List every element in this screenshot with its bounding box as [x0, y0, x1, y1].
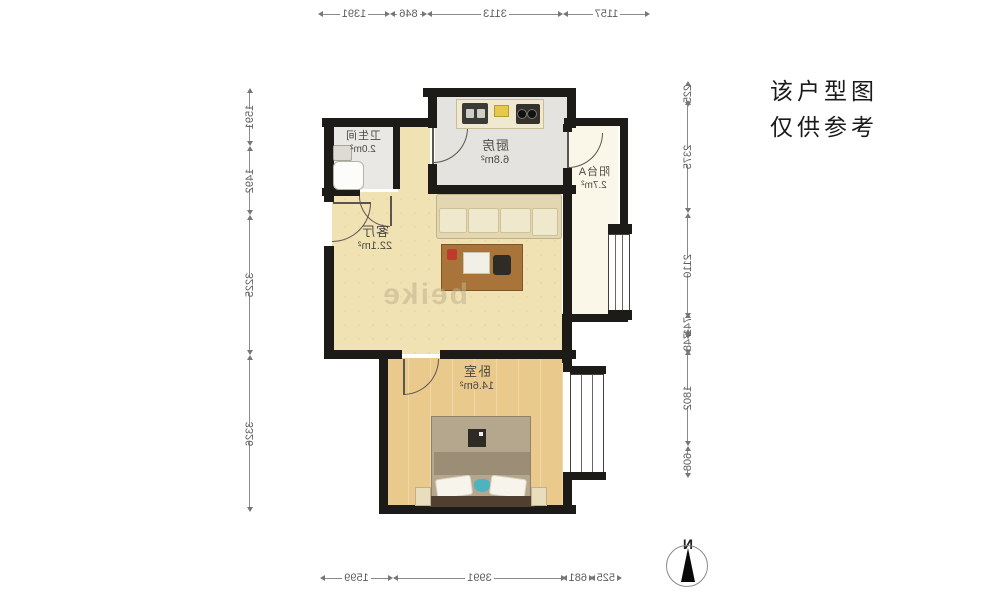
- hallway-floor: [398, 127, 430, 193]
- compass-needle: [681, 548, 695, 582]
- dim-segment: 846: [390, 8, 427, 20]
- cutting-board: [494, 105, 509, 117]
- dim-segment: 525: [594, 572, 622, 584]
- table-tray: [463, 252, 490, 274]
- dim-segment: 3113: [427, 8, 563, 20]
- bedroom-bay-window: [570, 374, 604, 474]
- wall: [393, 125, 400, 189]
- reference-note-line1: 该户型图: [770, 74, 900, 110]
- room-label-bedroom: 卧室14.6m²: [442, 364, 512, 394]
- room-label-bathroom: 卫生间2.0m²: [332, 130, 394, 156]
- dim-segment: 1391: [318, 8, 390, 20]
- wall: [423, 88, 576, 97]
- dim-segment: 3326: [244, 355, 256, 512]
- bathroom-door-leaf: [390, 196, 392, 226]
- red-decor: [447, 249, 457, 260]
- room-label-kitchen: 厨房6.8m²: [455, 138, 535, 168]
- balcony-window: [608, 234, 630, 312]
- dim-segment: 1591: [244, 88, 256, 146]
- dim-segment: 1802: [682, 350, 694, 446]
- window-post: [608, 310, 632, 320]
- dim-segment: 2375: [682, 100, 694, 213]
- dim-segment: 1157: [563, 8, 650, 20]
- nightstand: [415, 487, 431, 506]
- dim-segment: 1492: [244, 146, 256, 215]
- wall: [379, 355, 388, 514]
- bed-decor: [468, 429, 486, 447]
- wall: [324, 246, 334, 358]
- dim-segment: 748: [682, 334, 694, 350]
- stove-icon: [516, 104, 540, 124]
- wall: [428, 185, 576, 194]
- bed-blanket: [434, 452, 530, 475]
- wall: [322, 118, 432, 127]
- bathtub: [333, 161, 364, 190]
- dim-segment: 681: [566, 572, 594, 584]
- wall: [564, 118, 628, 126]
- window-post: [570, 366, 606, 374]
- teal-cushion: [474, 479, 490, 492]
- sofa: [436, 194, 562, 239]
- sink-icon: [462, 103, 488, 124]
- dim-segment: 3991: [393, 572, 566, 584]
- headboard: [429, 496, 535, 507]
- wall: [324, 350, 402, 359]
- dim-segment: 3225: [244, 215, 256, 355]
- watermark: beike: [381, 278, 468, 312]
- nightstand: [531, 487, 547, 506]
- room-label-living: 客厅22.1m²: [343, 224, 407, 254]
- reference-note: 该户型图 仅供参考: [770, 74, 900, 145]
- window-post: [608, 224, 632, 234]
- room-label-balcony: 阳台A2.7m²: [566, 166, 622, 192]
- window-post: [570, 472, 606, 480]
- dim-segment: 1599: [320, 572, 393, 584]
- reference-note-line2: 仅供参考: [770, 110, 900, 146]
- dim-segment: 225: [682, 88, 694, 100]
- dim-segment: 2110: [682, 213, 694, 318]
- wall: [563, 124, 572, 132]
- table-items: [493, 255, 511, 275]
- wall: [440, 350, 576, 359]
- dim-segment: 608: [682, 446, 694, 478]
